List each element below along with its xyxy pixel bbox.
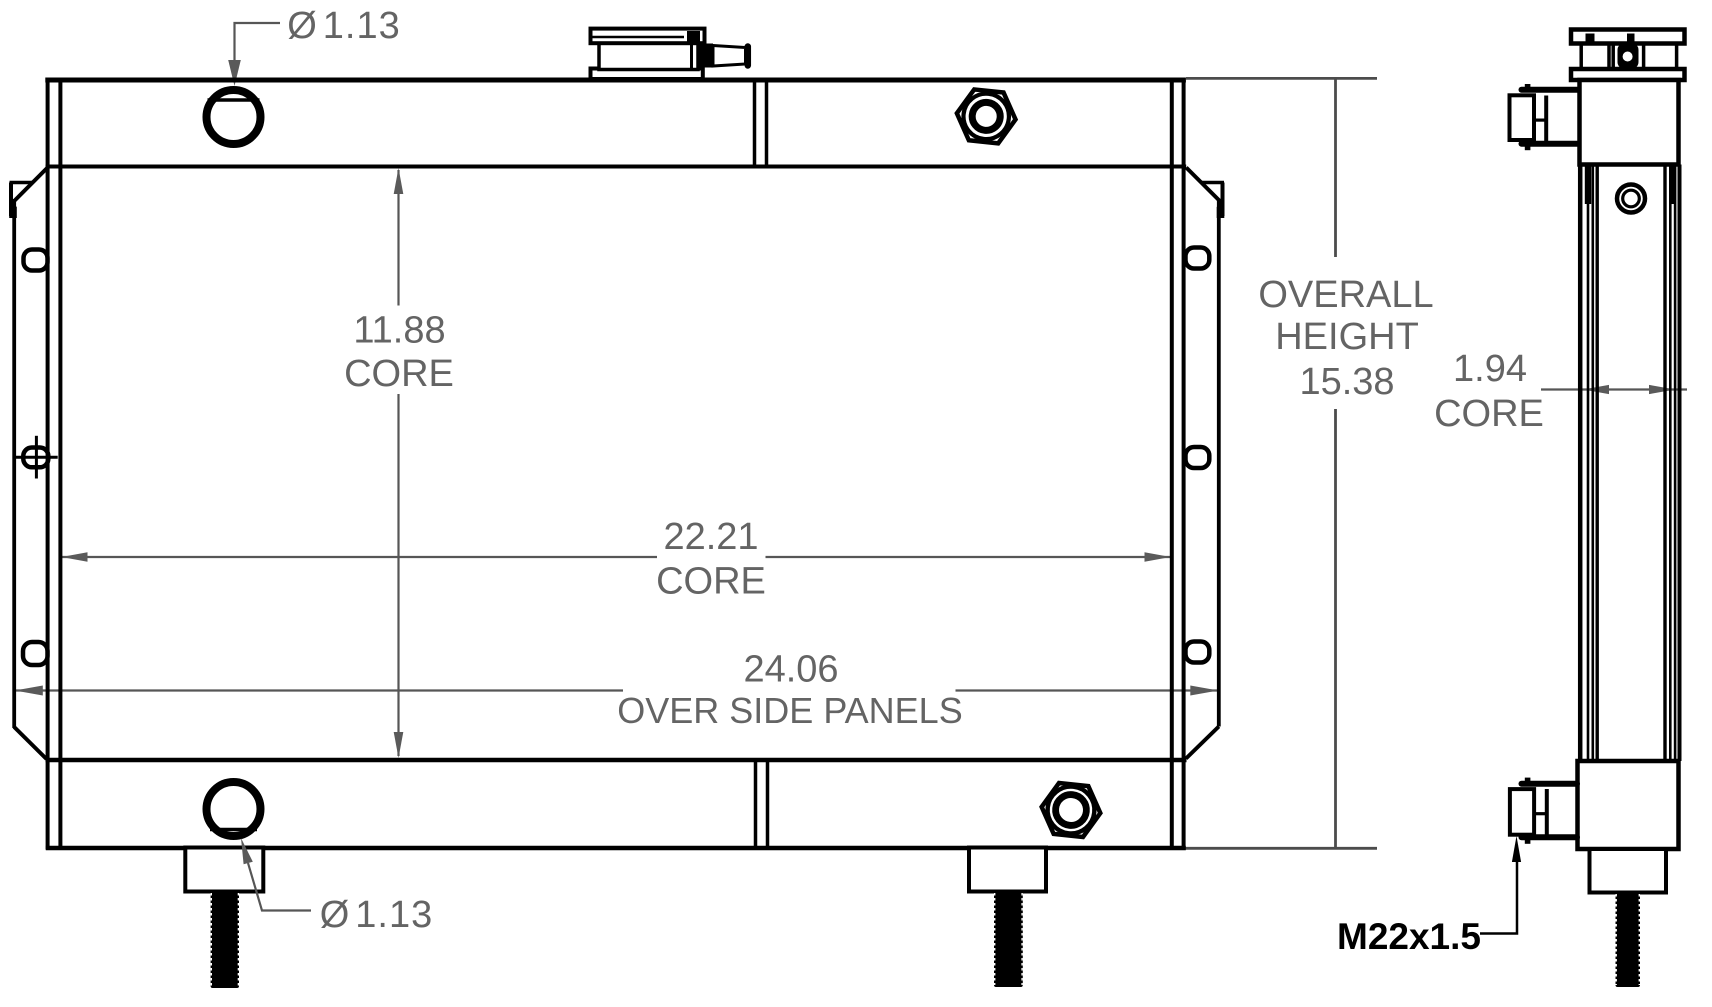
svg-text:24.06: 24.06 bbox=[743, 649, 838, 691]
svg-text:CORE: CORE bbox=[344, 353, 454, 395]
svg-text:M22x1.5: M22x1.5 bbox=[1337, 916, 1481, 957]
svg-text:22.21: 22.21 bbox=[663, 516, 758, 558]
svg-text:OVERALL: OVERALL bbox=[1258, 274, 1433, 316]
svg-text:1.94: 1.94 bbox=[1453, 348, 1527, 390]
svg-text:11.88: 11.88 bbox=[353, 310, 445, 352]
svg-text:OVER SIDE PANELS: OVER SIDE PANELS bbox=[617, 690, 962, 731]
svg-text:15.38: 15.38 bbox=[1299, 361, 1394, 403]
svg-text:Ø1.13: Ø1.13 bbox=[320, 894, 434, 936]
svg-text:HEIGHT: HEIGHT bbox=[1275, 316, 1419, 358]
svg-text:Ø1.13: Ø1.13 bbox=[287, 5, 401, 47]
svg-text:CORE: CORE bbox=[656, 561, 766, 603]
svg-text:CORE: CORE bbox=[1434, 393, 1544, 435]
